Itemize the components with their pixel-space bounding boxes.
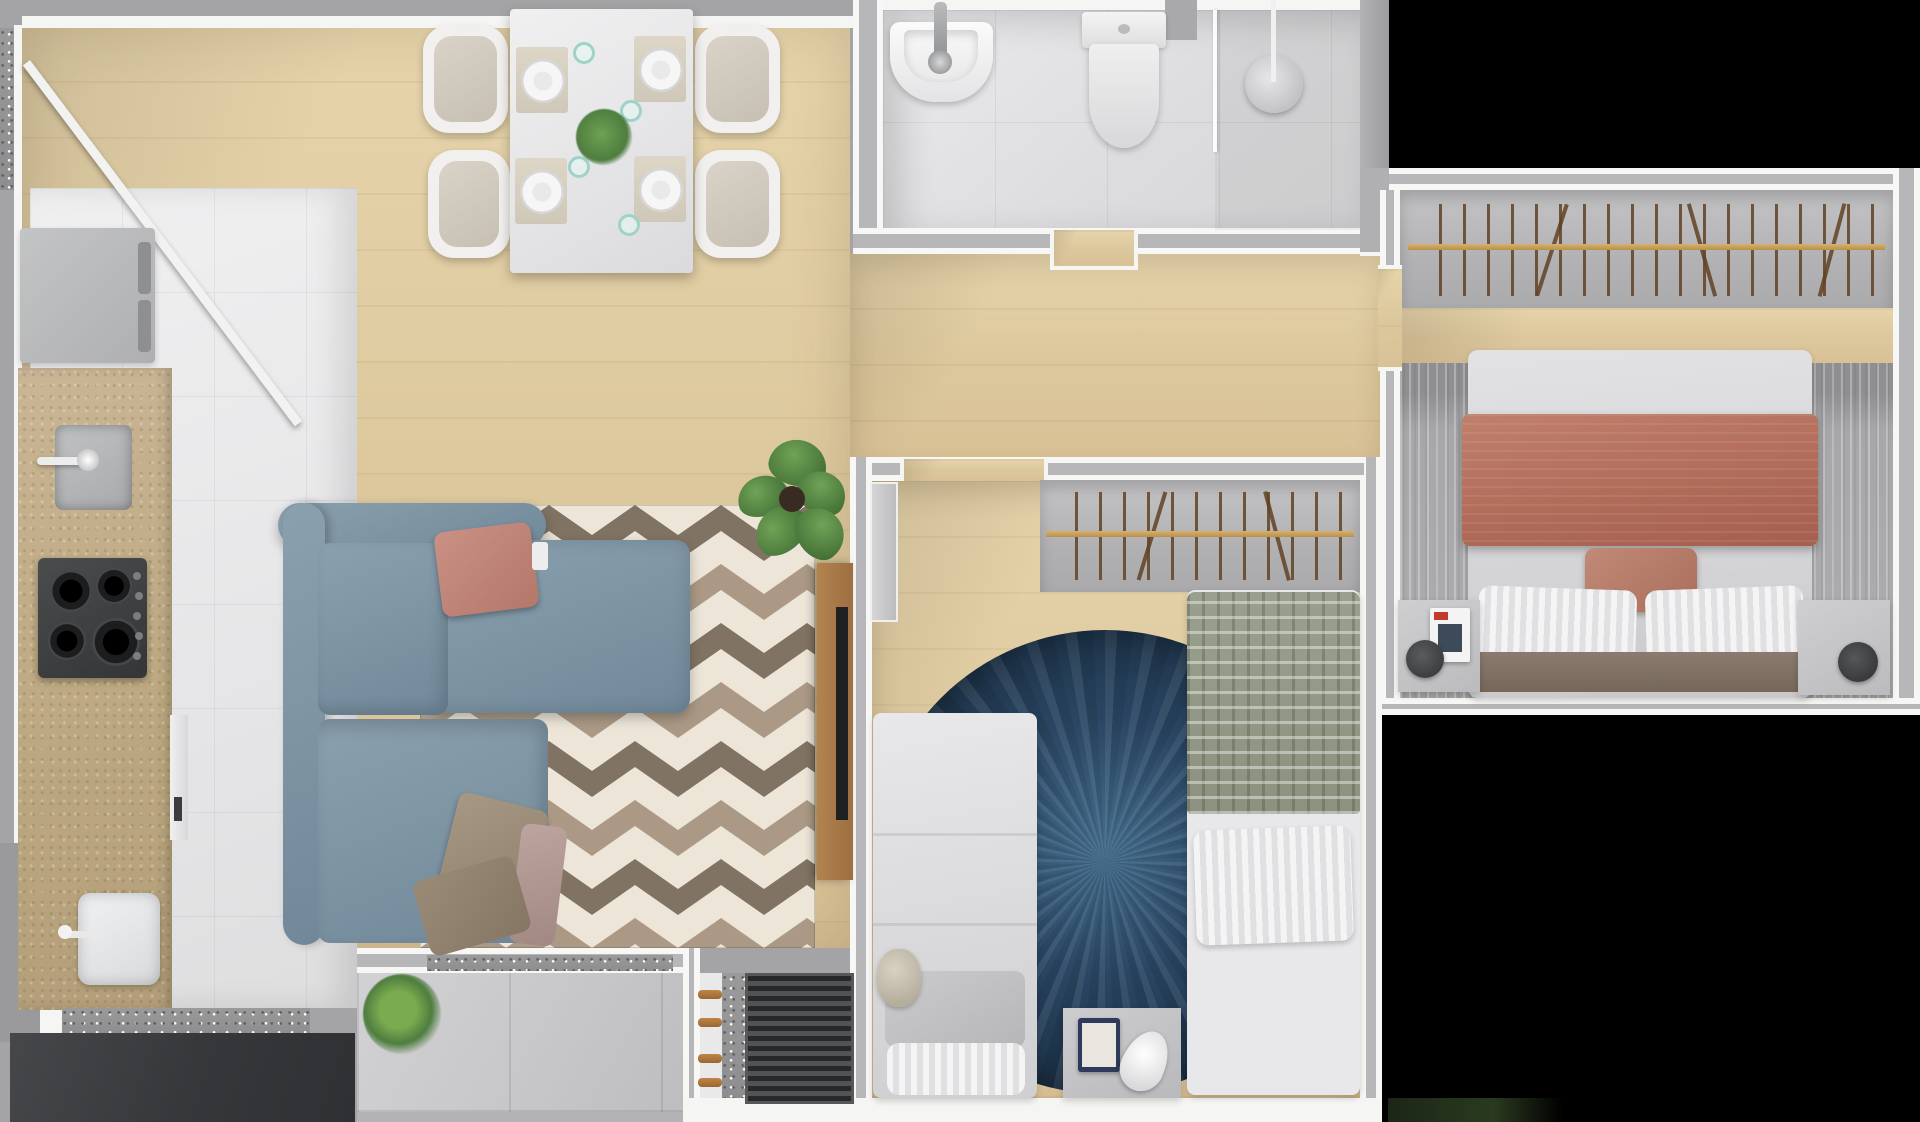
door-opening-master	[1378, 265, 1402, 371]
door-leaf-bedroom-kids	[870, 482, 898, 622]
book-pages	[1082, 1023, 1116, 1067]
closet-master-hangers	[1418, 204, 1879, 296]
door-opening-bedroom-kids	[900, 459, 1048, 481]
niche-peg-2	[698, 1018, 722, 1027]
bed-left-blanket-fold	[873, 923, 1037, 926]
bed-left-pillow-white	[887, 1043, 1025, 1095]
toilet-flush-button	[1118, 24, 1130, 34]
dining-chair-top-right	[695, 25, 780, 133]
dining-table	[510, 9, 693, 273]
outside-area-bottom-right	[1382, 715, 1920, 1122]
sofa-remote	[532, 542, 548, 570]
plate	[521, 59, 565, 103]
balcony-plant	[363, 974, 441, 1054]
chair-cushion	[706, 161, 769, 247]
outside-vegetation-strip	[1388, 1098, 1563, 1122]
built-in-appliance-front	[170, 715, 188, 840]
closet-kids-rail	[1046, 531, 1354, 537]
laundry-sink	[78, 893, 160, 985]
speaker-round-right	[1838, 642, 1878, 682]
wall-niche-left	[683, 948, 700, 1122]
cooktop-knob-2	[135, 592, 143, 600]
balcony-threshold	[427, 955, 673, 971]
wall-bathroom-left	[853, 0, 883, 252]
wall-shower-jog	[1165, 0, 1197, 40]
closet-kids	[1040, 480, 1360, 592]
cooktop-knob-1	[133, 572, 141, 580]
refrigerator-handle-bottom	[138, 300, 151, 352]
plant-monstera	[735, 438, 850, 560]
sofa-seat-upper	[318, 543, 448, 715]
closet-master	[1400, 190, 1893, 308]
niche-louvered-unit	[745, 973, 854, 1104]
dining-chair-bottom-right	[695, 150, 780, 258]
kitchen-sink	[55, 425, 132, 510]
plate	[520, 170, 564, 214]
bed-single-right	[1187, 590, 1360, 1095]
cooktop-knob-4	[135, 632, 143, 640]
cooktop	[38, 558, 147, 678]
balcony-bottom-edge	[357, 1112, 683, 1122]
drinking-glass-1	[573, 42, 595, 64]
niche-peg-3	[698, 1054, 722, 1063]
burner-4	[92, 618, 140, 666]
toilet-bowl	[1089, 44, 1159, 148]
speaker-round	[1406, 640, 1444, 678]
chair-cushion	[434, 36, 497, 122]
wall-bedroom-kids-right	[1360, 457, 1382, 1098]
chair-cushion	[706, 36, 769, 122]
closet-master-rail	[1408, 244, 1885, 250]
niche-granite-strip	[722, 973, 745, 1098]
nightstand-kids	[1063, 1008, 1181, 1098]
laundry-dark-surface	[10, 1033, 355, 1122]
door-opening-bathroom	[1050, 230, 1138, 270]
bed-master	[1468, 350, 1812, 698]
bathroom-sink	[890, 22, 993, 102]
wall-master-right	[1893, 168, 1920, 698]
dining-chair-top-left	[423, 25, 508, 133]
table-centerpiece-plant	[576, 109, 632, 165]
shower-glass-partition	[1213, 10, 1217, 152]
wall-master-bottom	[1382, 698, 1920, 715]
table-lamp	[1112, 1024, 1177, 1099]
burner-1	[50, 570, 92, 612]
niche-peg-4	[698, 1078, 722, 1087]
bed-master-blanket-terracotta	[1462, 414, 1818, 546]
nightstand-master-left	[1398, 600, 1480, 692]
refrigerator-handle-top	[138, 242, 151, 294]
shower-zone-tint	[1215, 10, 1360, 230]
monstera-pot	[779, 486, 805, 512]
bed-master-footboard-bench	[1472, 652, 1808, 692]
tv-screen	[836, 607, 848, 820]
drinking-glass-4	[618, 214, 640, 236]
tv-panel	[817, 563, 853, 880]
outside-area-top-right	[1389, 0, 1920, 168]
niche-peg-1	[698, 990, 722, 999]
laundry-faucet-knob	[58, 925, 72, 939]
burner-3	[48, 622, 86, 660]
toilet	[1082, 12, 1166, 142]
bed-right-pillow-white	[1193, 825, 1354, 945]
kitchen-faucet-knob	[77, 449, 99, 471]
bed-right-blanket-patterned	[1187, 592, 1360, 814]
refrigerator	[20, 228, 155, 363]
appliance-handle	[174, 797, 182, 821]
plate	[639, 168, 683, 212]
photo-image-detail	[1438, 624, 1462, 652]
chair-cushion	[439, 161, 499, 247]
bathroom-faucet-knob	[928, 50, 952, 74]
shower-arm	[1271, 0, 1276, 82]
photo-red-detail	[1434, 612, 1448, 620]
plate	[639, 48, 683, 92]
dining-chair-bottom-left	[428, 150, 510, 258]
wall-master-top	[1389, 168, 1920, 190]
floor-plan-canvas	[0, 0, 1920, 1122]
laundry-counter-granite	[62, 1008, 310, 1033]
cooktop-knob-5	[133, 652, 141, 660]
teddy-bear	[877, 949, 921, 1007]
bed-single-left	[873, 713, 1037, 1098]
book-navy	[1078, 1018, 1120, 1072]
bed-left-blanket-fold	[873, 833, 1037, 836]
nightstand-master-right	[1798, 600, 1890, 695]
cooktop-knob-3	[133, 612, 141, 620]
burner-2	[96, 568, 132, 604]
floor-hallway	[850, 252, 1380, 457]
sofa-pillow-coral	[433, 521, 540, 617]
